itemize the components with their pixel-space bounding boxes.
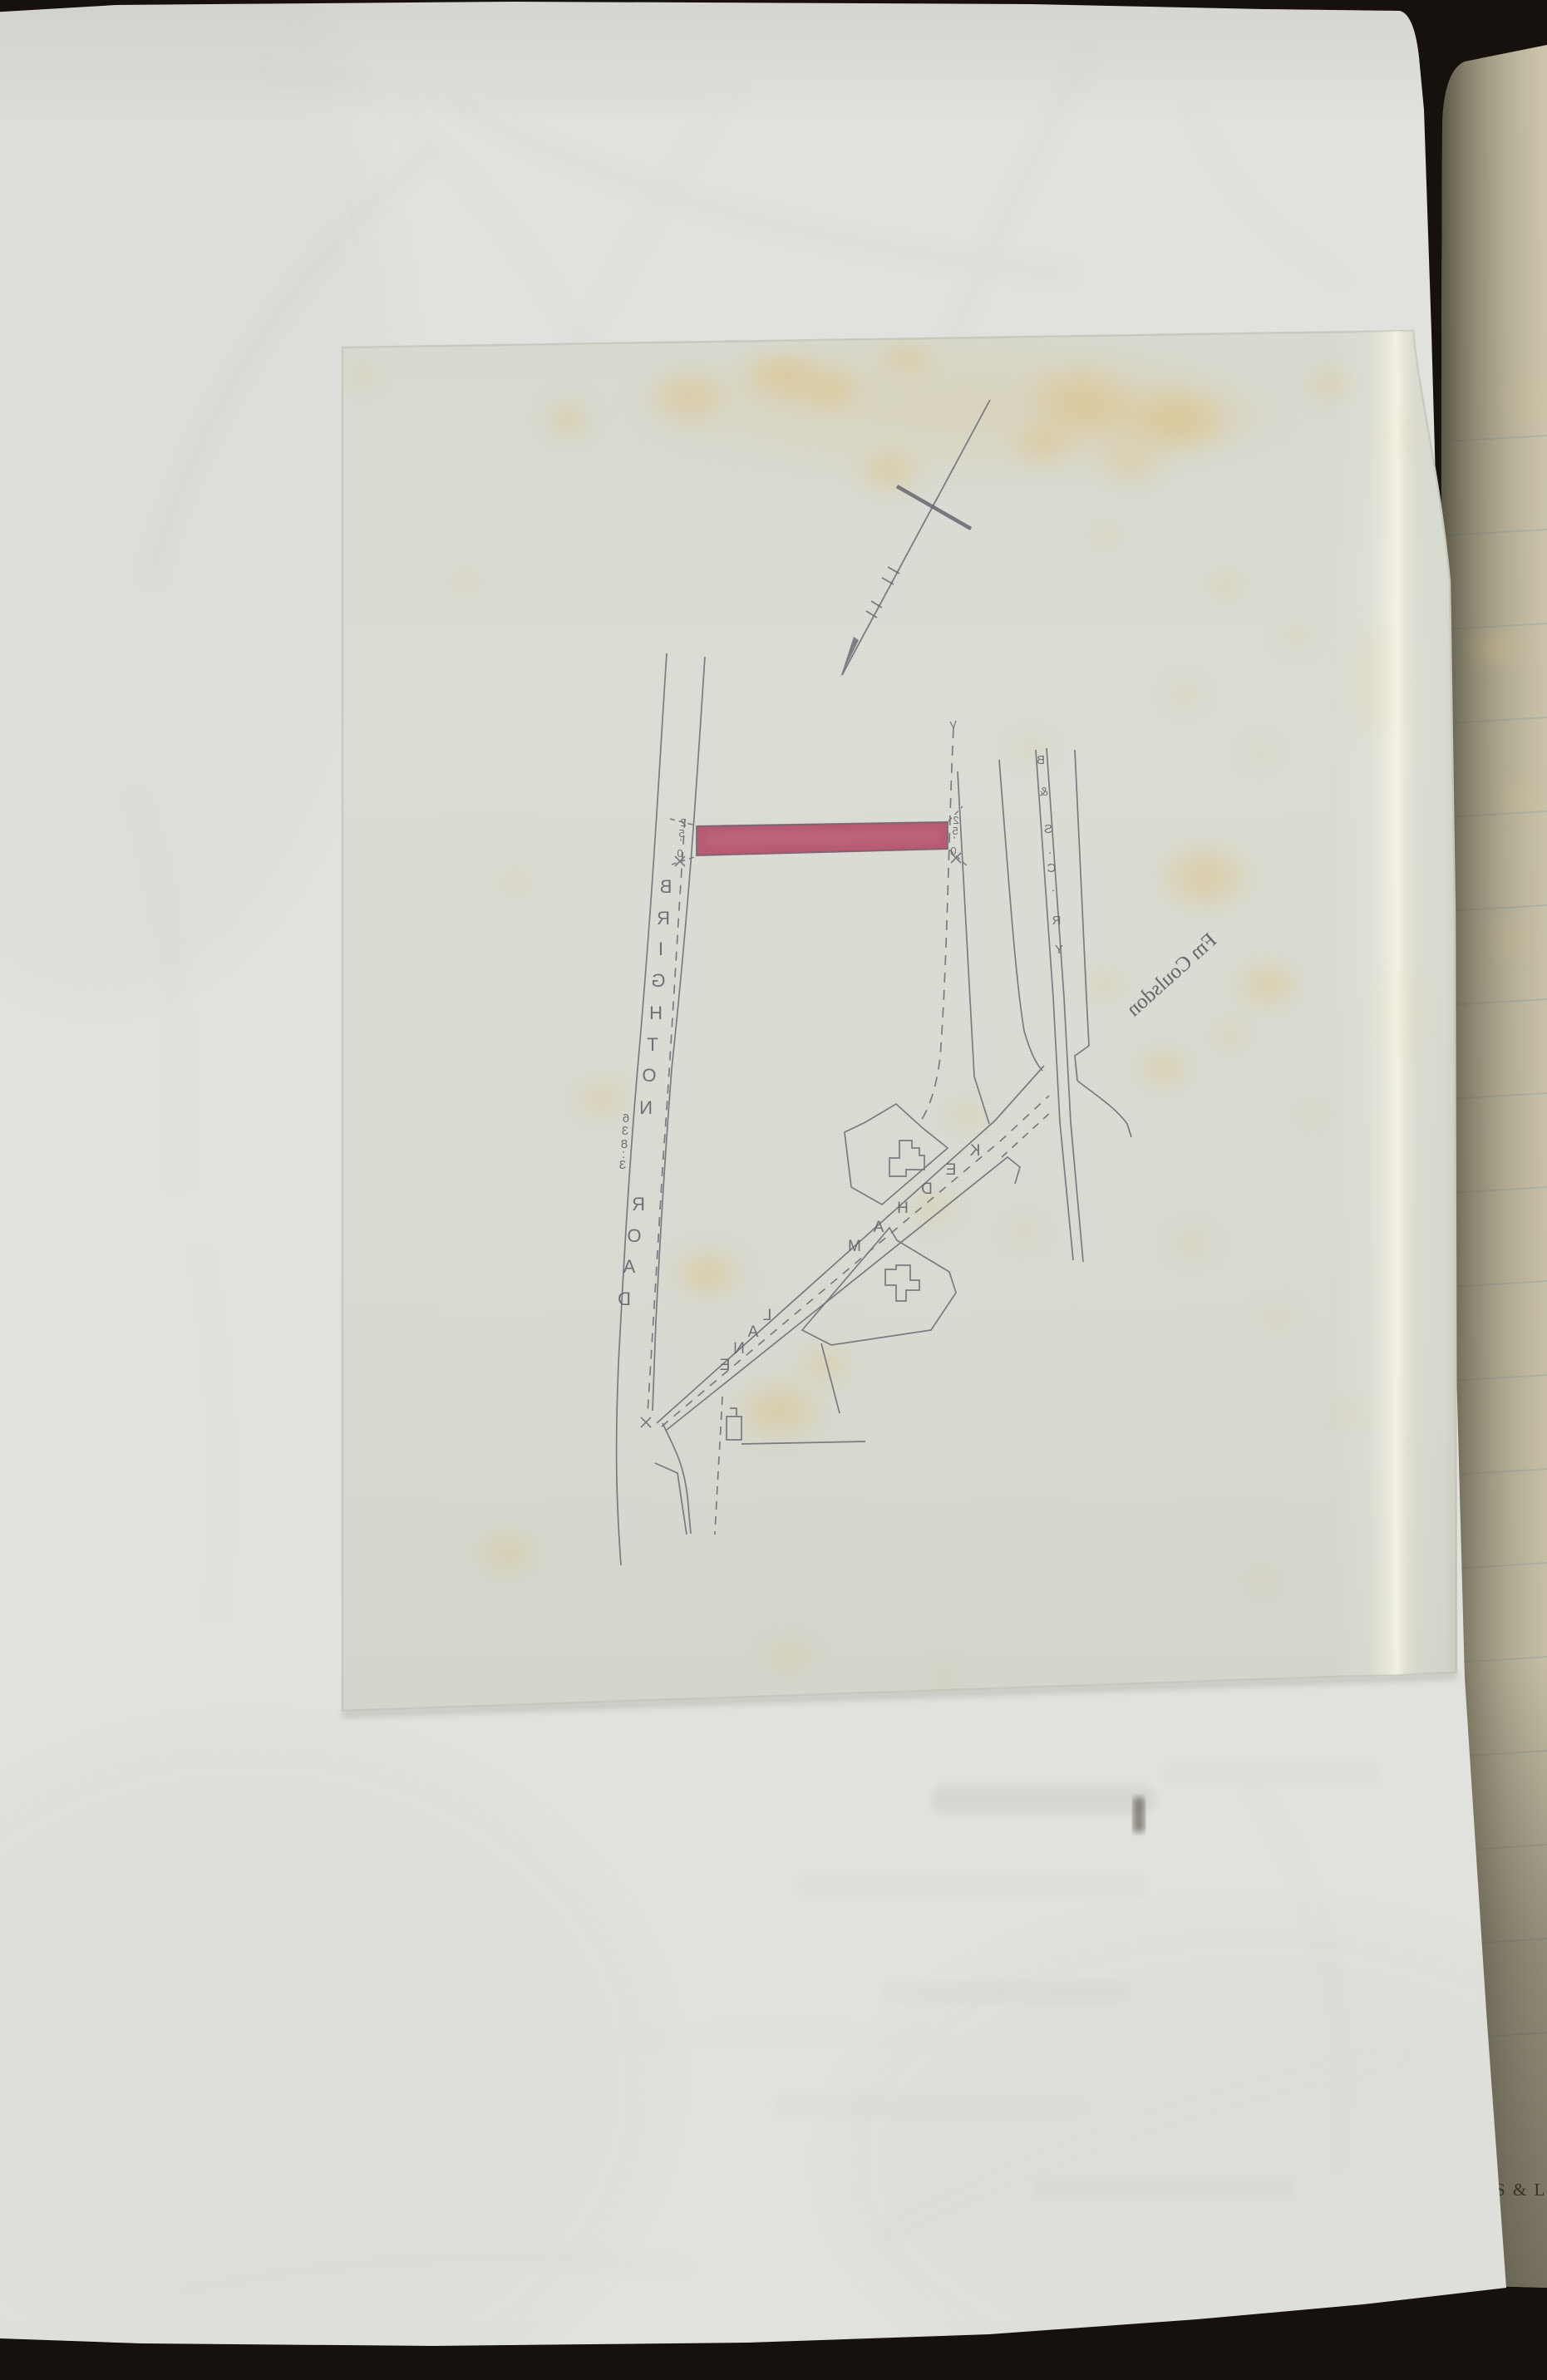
svg-text:0: 0 [950,845,956,857]
svg-text:N: N [639,1097,653,1118]
svg-text:.: . [1052,880,1055,894]
svg-text:O: O [642,1065,656,1086]
svg-text:A: A [623,1256,635,1277]
svg-text:R: R [632,1194,645,1215]
svg-text:R: R [1052,914,1061,928]
svg-text:O: O [627,1225,641,1246]
svg-text:D: D [921,1180,933,1198]
svg-text:Y: Y [1055,943,1063,957]
svg-text:3: 3 [622,1124,628,1138]
svg-text:H: H [649,1003,663,1023]
svg-text:E: E [720,1357,731,1374]
svg-text:0: 0 [677,847,682,860]
svg-text:K: K [969,1142,980,1160]
svg-text:D: D [618,1289,631,1309]
svg-text:B: B [1037,753,1045,767]
svg-text:N: N [733,1340,745,1358]
svg-text:T: T [647,1034,658,1055]
svg-text:C: C [1047,861,1056,875]
svg-text:S: S [1044,822,1052,836]
svg-text:A: A [873,1219,884,1236]
svg-text:H: H [897,1200,909,1217]
svg-text:B: B [660,876,673,897]
svg-text:R: R [657,908,670,929]
svg-text:&: & [1040,785,1048,799]
svg-text:S & LO: S & LO [1495,2180,1547,2200]
svg-text:L: L [763,1307,772,1324]
svg-text:I: I [658,939,663,959]
svg-text:A: A [747,1323,758,1341]
svg-text:G: G [651,970,665,991]
svg-text:E: E [946,1161,957,1179]
svg-text:M: M [848,1238,861,1255]
svg-text:.: . [1048,843,1052,857]
svg-text:3: 3 [619,1158,626,1172]
